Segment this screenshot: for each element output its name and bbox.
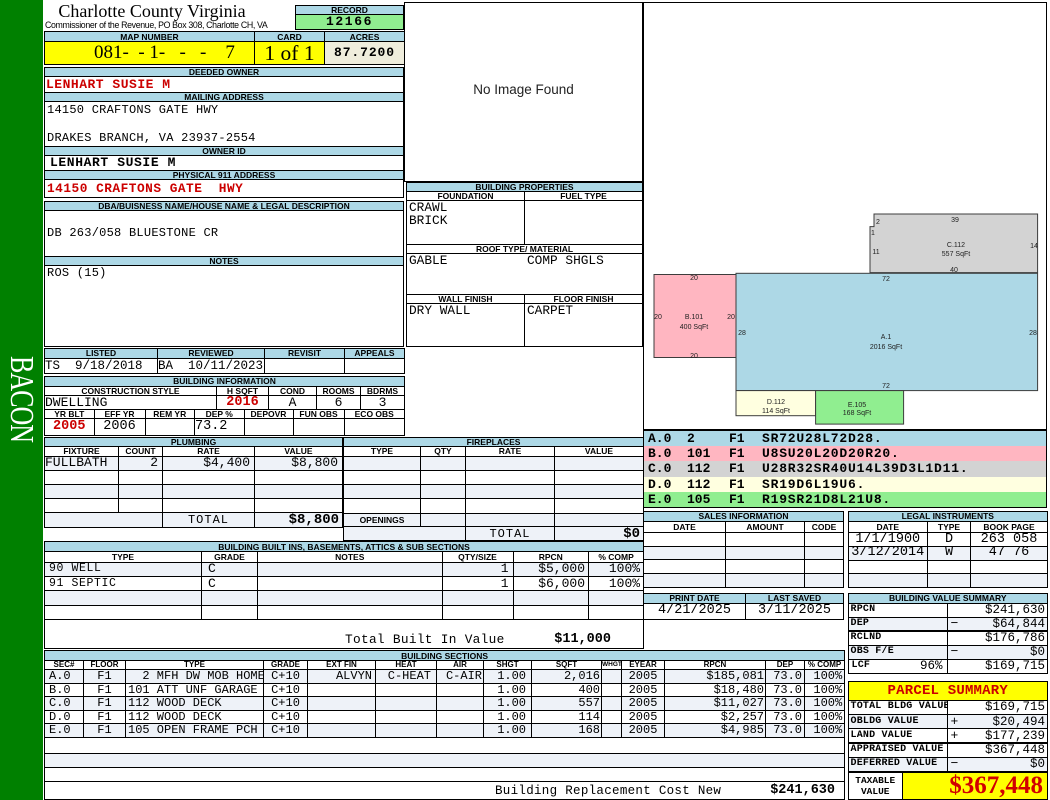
svg-text:2016 SqFt: 2016 SqFt <box>870 344 902 351</box>
svg-text:168 SqFt: 168 SqFt <box>843 410 871 417</box>
svg-text:72: 72 <box>882 383 890 390</box>
svg-text:20: 20 <box>690 353 698 360</box>
svg-text:40: 40 <box>950 267 958 274</box>
svg-text:20: 20 <box>727 314 735 321</box>
svg-text:39: 39 <box>951 217 959 224</box>
svg-text:A.1: A.1 <box>881 334 892 341</box>
svg-text:11: 11 <box>872 249 879 256</box>
svg-text:C.112: C.112 <box>947 242 965 249</box>
svg-text:400 SqFt: 400 SqFt <box>680 324 708 331</box>
svg-text:D.112: D.112 <box>767 399 785 406</box>
svg-text:1: 1 <box>871 230 875 237</box>
svg-text:557 SqFt: 557 SqFt <box>942 251 970 258</box>
svg-text:20: 20 <box>654 314 662 321</box>
svg-text:28: 28 <box>738 330 746 337</box>
svg-text:2: 2 <box>876 219 880 226</box>
svg-text:28: 28 <box>1029 330 1037 337</box>
svg-text:20: 20 <box>690 275 698 282</box>
svg-text:E.105: E.105 <box>848 402 866 409</box>
svg-text:72: 72 <box>882 276 890 283</box>
svg-text:114 SqFt: 114 SqFt <box>762 408 790 415</box>
svg-text:B.101: B.101 <box>685 314 703 321</box>
svg-text:14: 14 <box>1030 243 1038 250</box>
